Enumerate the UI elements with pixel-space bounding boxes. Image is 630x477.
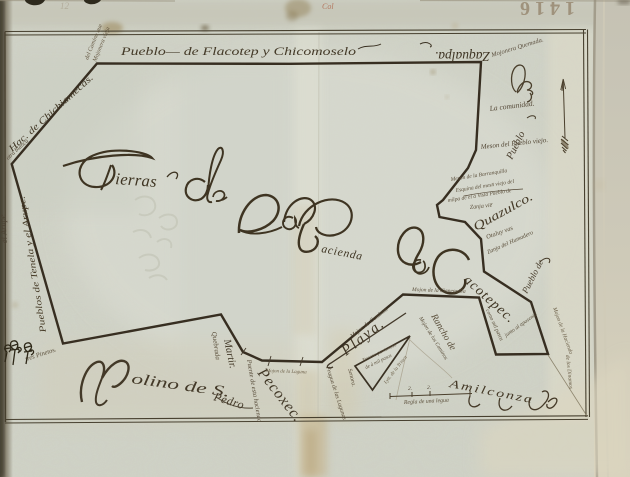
svg-text:12: 12 xyxy=(60,1,70,11)
svg-text:2.: 2. xyxy=(427,385,431,391)
svg-text:ierras: ierras xyxy=(115,169,158,191)
svg-text:Zaqualpa.: Zaqualpa. xyxy=(435,49,490,64)
svg-text:1416: 1416 xyxy=(515,0,575,19)
svg-text:Pueblo— de Flacotep y Chicom: Pueblo— de Flacotep y Chicomoselo xyxy=(120,44,356,58)
svg-text:1.: 1. xyxy=(466,384,470,390)
svg-text:2.: 2. xyxy=(408,386,412,392)
svg-text:Col: Col xyxy=(322,2,334,11)
